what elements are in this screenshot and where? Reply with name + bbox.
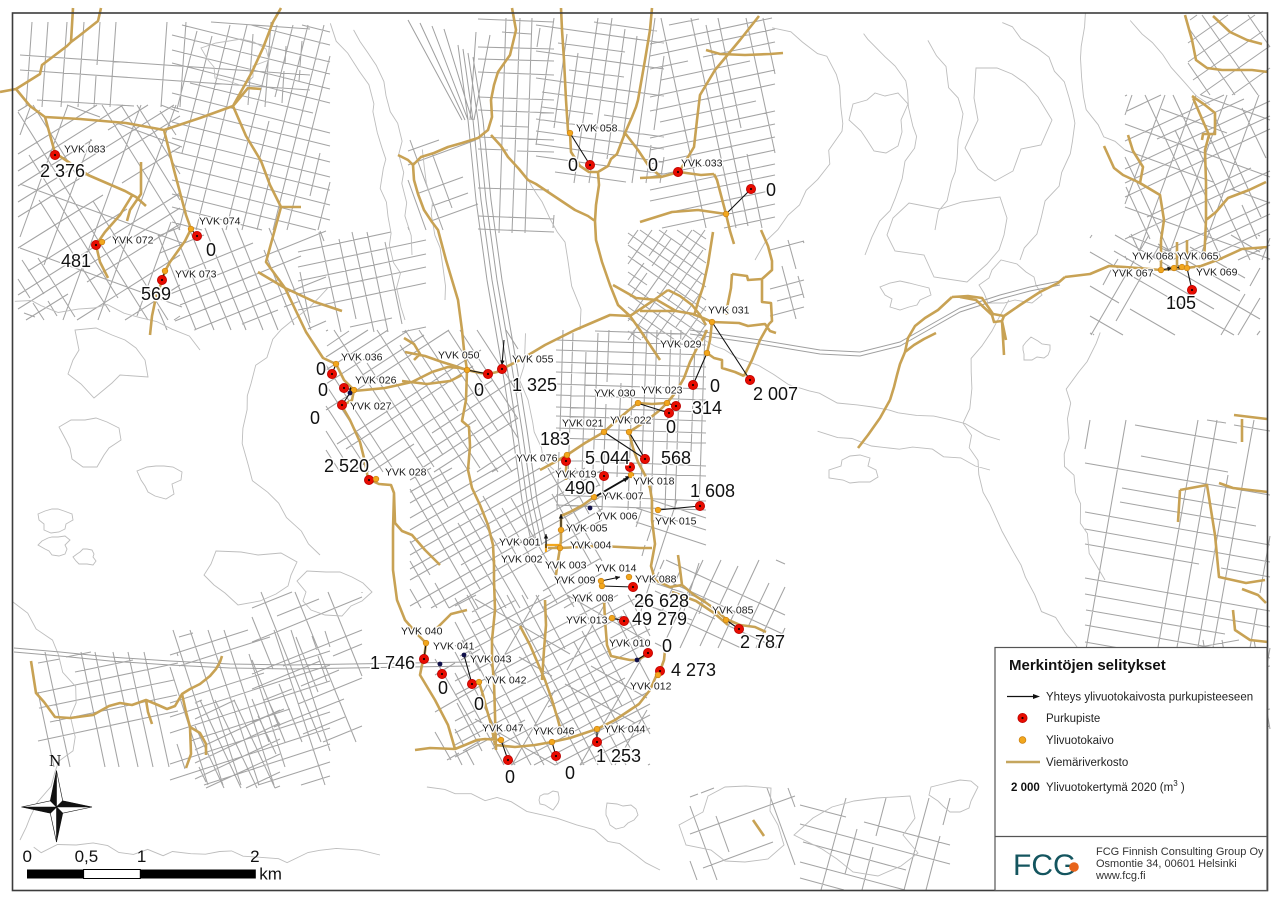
- svg-text:YVK 018: YVK 018: [633, 476, 675, 488]
- svg-text:YVK 073: YVK 073: [175, 269, 217, 281]
- svg-text:YVK 050: YVK 050: [438, 350, 480, 362]
- svg-text:0: 0: [662, 636, 672, 656]
- svg-text:km: km: [259, 865, 282, 884]
- svg-text:0: 0: [474, 380, 484, 400]
- svg-text:1 608: 1 608: [690, 481, 735, 501]
- svg-text:FCG: FCG: [1013, 849, 1076, 882]
- svg-text:0: 0: [565, 763, 575, 783]
- svg-text:YVK 015: YVK 015: [655, 516, 697, 528]
- svg-text:YVK 083: YVK 083: [64, 144, 106, 156]
- svg-text:YVK 041: YVK 041: [433, 641, 475, 653]
- svg-text:YVK 002: YVK 002: [501, 554, 543, 566]
- svg-text:1: 1: [137, 847, 146, 866]
- svg-text:YVK 033: YVK 033: [681, 158, 723, 170]
- svg-text:0: 0: [666, 417, 676, 437]
- svg-text:2 000: 2 000: [1011, 782, 1040, 794]
- svg-text:2 787: 2 787: [740, 632, 785, 652]
- svg-text:YVK 014: YVK 014: [595, 563, 637, 575]
- svg-text:YVK 012: YVK 012: [630, 681, 672, 693]
- svg-text:YVK 009: YVK 009: [554, 575, 596, 587]
- svg-text:Yhteys ylivuotokaivosta purkup: Yhteys ylivuotokaivosta purkupisteeseen: [1046, 692, 1253, 704]
- svg-text:0: 0: [505, 767, 515, 787]
- svg-text:Ylivuotokaivo: Ylivuotokaivo: [1046, 735, 1114, 747]
- svg-text:Viemäriverkosto: Viemäriverkosto: [1046, 757, 1128, 769]
- svg-text:YVK 023: YVK 023: [641, 385, 683, 397]
- svg-text:YVK 042: YVK 042: [485, 675, 527, 687]
- svg-text:YVK 072: YVK 072: [112, 235, 154, 247]
- svg-text:YVK 076: YVK 076: [516, 453, 558, 465]
- svg-text:0: 0: [648, 155, 658, 175]
- svg-text:YVK 047: YVK 047: [482, 723, 524, 735]
- svg-text:1 325: 1 325: [512, 375, 557, 395]
- svg-text:4 273: 4 273: [671, 660, 716, 680]
- svg-text:YVK 027: YVK 027: [350, 401, 392, 413]
- svg-text:Ylivuotokertymä 2020 (m3 ): Ylivuotokertymä 2020 (m3 ): [1046, 779, 1185, 794]
- svg-text:2 520: 2 520: [324, 456, 369, 476]
- svg-text:Purkupiste: Purkupiste: [1046, 713, 1100, 725]
- svg-text:314: 314: [692, 398, 722, 418]
- svg-text:YVK 065: YVK 065: [1177, 251, 1219, 263]
- svg-text:26 628: 26 628: [634, 591, 689, 611]
- svg-text:YVK 001: YVK 001: [499, 537, 541, 549]
- svg-text:481: 481: [61, 251, 91, 271]
- svg-text:YVK 030: YVK 030: [594, 388, 636, 400]
- svg-text:YVK 085: YVK 085: [712, 605, 754, 617]
- svg-text:YVK 008: YVK 008: [572, 593, 614, 605]
- svg-text:YVK 067: YVK 067: [1112, 268, 1154, 280]
- svg-text:183: 183: [540, 429, 570, 449]
- svg-text:0: 0: [206, 240, 216, 260]
- svg-text:Merkintöjen selitykset: Merkintöjen selitykset: [1009, 657, 1166, 674]
- svg-text:0: 0: [474, 694, 484, 714]
- svg-text:YVK 021: YVK 021: [562, 418, 604, 430]
- svg-text:YVK 044: YVK 044: [604, 724, 646, 736]
- svg-text:YVK 007: YVK 007: [602, 491, 644, 503]
- svg-text:0: 0: [318, 380, 328, 400]
- svg-text:YVK 010: YVK 010: [609, 638, 651, 650]
- svg-text:Osmontie 34, 00601 Helsinki: Osmontie 34, 00601 Helsinki: [1096, 858, 1237, 870]
- svg-text:YVK 068: YVK 068: [1132, 251, 1174, 263]
- svg-text:0: 0: [316, 359, 326, 379]
- svg-text:YVK 036: YVK 036: [341, 352, 383, 364]
- svg-text:YVK 046: YVK 046: [533, 726, 575, 738]
- svg-text:YVK 058: YVK 058: [576, 123, 618, 135]
- svg-text:FCG Finnish Consulting Group O: FCG Finnish Consulting Group Oy: [1096, 846, 1264, 858]
- svg-text:YVK 028: YVK 028: [385, 467, 427, 479]
- svg-text:568: 568: [661, 448, 691, 468]
- svg-text:YVK 074: YVK 074: [199, 216, 241, 228]
- svg-text:49 279: 49 279: [632, 609, 687, 629]
- svg-text:2 376: 2 376: [40, 161, 85, 181]
- svg-text:1 253: 1 253: [596, 746, 641, 766]
- svg-text:5 044: 5 044: [585, 448, 630, 468]
- svg-text:0: 0: [568, 155, 578, 175]
- svg-text:YVK 029: YVK 029: [660, 339, 702, 351]
- svg-text:YVK 088: YVK 088: [635, 574, 677, 586]
- svg-text:YVK 055: YVK 055: [512, 354, 554, 366]
- svg-text:YVK 004: YVK 004: [570, 540, 612, 552]
- svg-text:0: 0: [438, 678, 448, 698]
- svg-text:2: 2: [250, 847, 259, 866]
- svg-text:YVK 006: YVK 006: [596, 511, 638, 523]
- svg-text:0: 0: [710, 376, 720, 396]
- svg-text:0: 0: [766, 180, 776, 200]
- svg-text:YVK 022: YVK 022: [610, 415, 652, 427]
- svg-text:0: 0: [310, 408, 320, 428]
- svg-text:569: 569: [141, 284, 171, 304]
- svg-text:YVK 040: YVK 040: [401, 626, 443, 638]
- svg-text:490: 490: [565, 478, 595, 498]
- svg-text:www.fcg.fi: www.fcg.fi: [1095, 870, 1146, 882]
- svg-text:0,5: 0,5: [75, 847, 99, 866]
- svg-text:YVK 031: YVK 031: [708, 305, 750, 317]
- svg-text:YVK 013: YVK 013: [566, 615, 608, 627]
- svg-text:N: N: [49, 751, 61, 770]
- svg-text:YVK 026: YVK 026: [355, 375, 397, 387]
- svg-text:2 007: 2 007: [753, 384, 798, 404]
- svg-text:0: 0: [23, 847, 32, 866]
- svg-text:1 746: 1 746: [370, 653, 415, 673]
- svg-text:YVK 043: YVK 043: [470, 654, 512, 666]
- svg-text:YVK 005: YVK 005: [566, 523, 608, 535]
- svg-text:105: 105: [1166, 293, 1196, 313]
- svg-text:YVK 069: YVK 069: [1196, 267, 1238, 279]
- svg-text:YVK 003: YVK 003: [545, 560, 587, 572]
